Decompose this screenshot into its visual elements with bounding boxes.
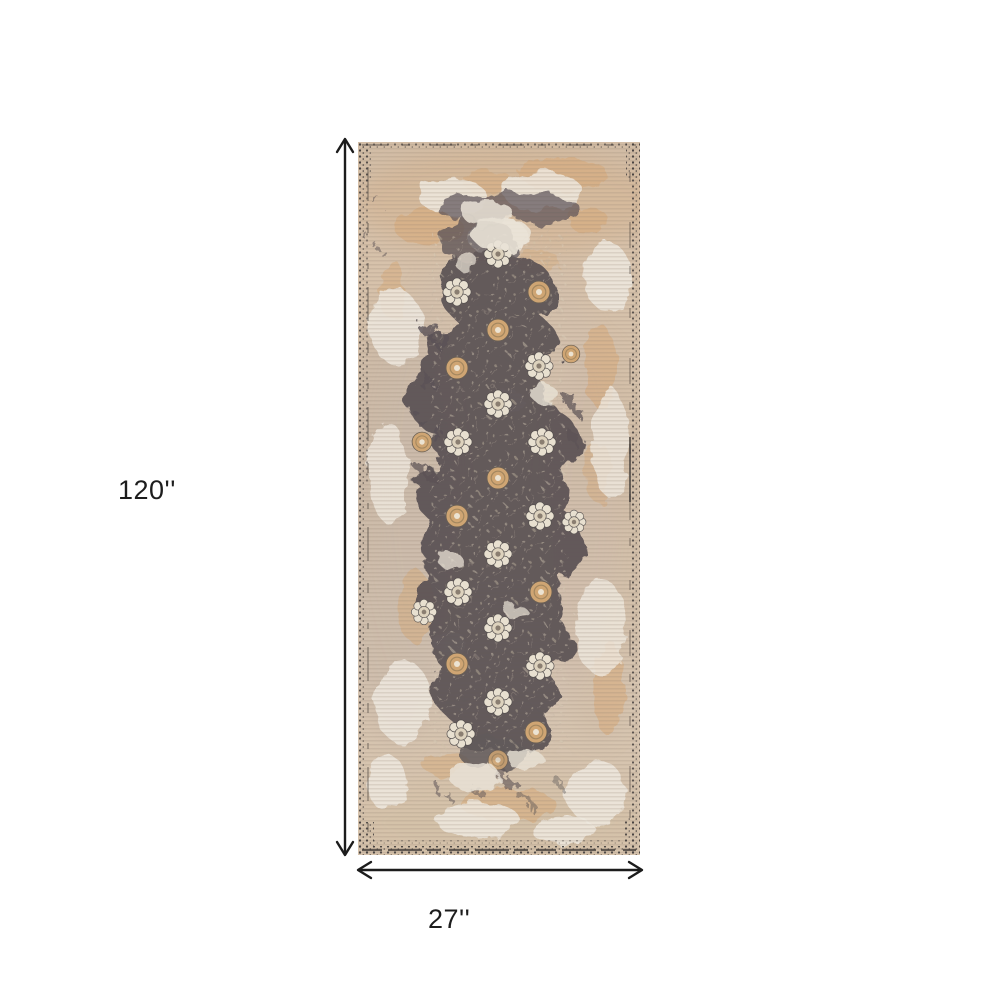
rug-photo-wrap: [358, 142, 640, 855]
width-dimension-label: 27'': [428, 906, 470, 933]
rug-photo: [358, 142, 640, 855]
product-dimension-image: 120'': [0, 0, 1000, 1000]
height-dimension-label: 120'': [118, 477, 176, 504]
width-dimension-arrow: [355, 859, 645, 881]
height-dimension-arrow: [334, 136, 356, 858]
